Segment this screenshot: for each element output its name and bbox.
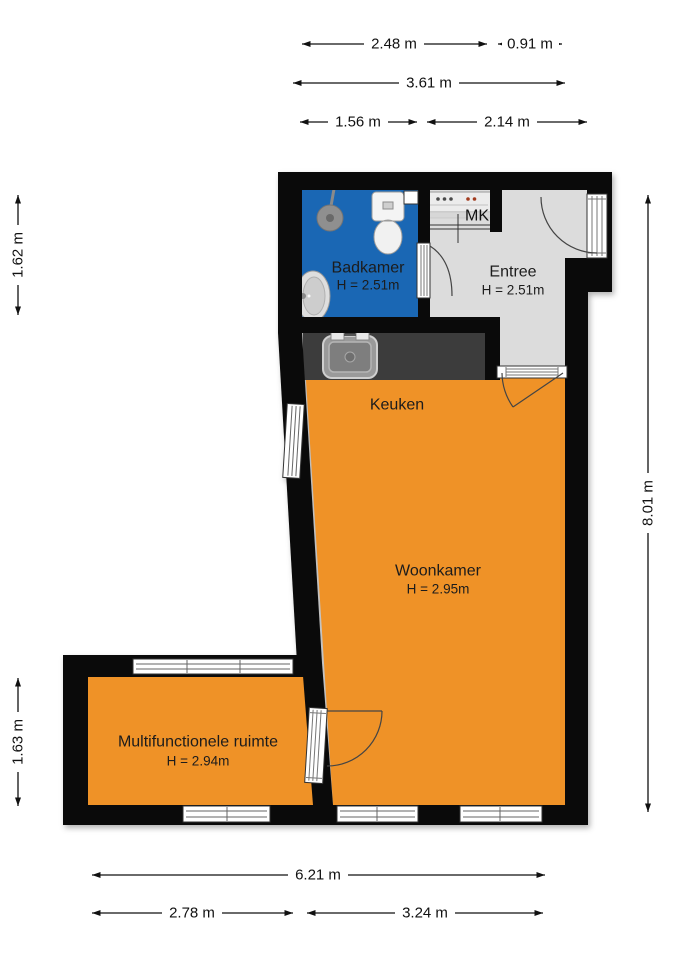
mf-height-label: H = 2.94m — [167, 754, 230, 769]
entree-label: Entree — [489, 264, 536, 281]
door-mf-woonkamer — [305, 708, 328, 784]
dim-bottom-6-21: 6.21 m — [295, 867, 341, 884]
vent-box — [404, 191, 418, 204]
dim-top-2-14: 2.14 m — [484, 114, 530, 131]
wall-right-lower — [565, 292, 588, 825]
woonkamer-height-label: H = 2.95m — [407, 582, 470, 597]
dim-left-1-63: 1.63 m — [10, 719, 27, 765]
window-mf-top — [133, 659, 293, 674]
floor-plan-page: Badkamer H = 2.51m Entree H = 2.51m MK K… — [0, 0, 679, 960]
window-woonkamer-bottom-left — [337, 806, 418, 822]
wall-mf-left — [63, 655, 88, 825]
window-woonkamer-bottom-right — [460, 806, 542, 822]
badkamer-label: Badkamer — [332, 260, 406, 277]
wall-below-badkamer — [278, 317, 500, 333]
mk-label: MK — [465, 208, 489, 225]
dim-right-8-01: 8.01 m — [640, 480, 657, 526]
building: Badkamer H = 2.51m Entree H = 2.51m MK K… — [63, 172, 612, 825]
dim-top-0-91: 0.91 m — [507, 36, 553, 53]
kitchen-sink-icon — [323, 331, 377, 378]
window-mf-bottom — [183, 806, 270, 822]
keuken-label: Keuken — [370, 397, 424, 414]
dim-top-2-48: 2.48 m — [371, 36, 417, 53]
dim-bottom-3-24: 3.24 m — [402, 905, 448, 922]
mf-label: Multifunctionele ruimte — [118, 734, 278, 751]
woonkamer-label: Woonkamer — [395, 563, 482, 580]
dim-bottom-2-78: 2.78 m — [169, 905, 215, 922]
wall-top — [278, 172, 612, 190]
floor-plan-drawing: Badkamer H = 2.51m Entree H = 2.51m MK K… — [0, 0, 679, 960]
entree-height-label: H = 2.51m — [482, 283, 545, 298]
wall-right-jog — [565, 258, 612, 292]
dim-top-3-61: 3.61 m — [406, 75, 452, 92]
dim-top-1-56: 1.56 m — [335, 114, 381, 131]
badkamer-height-label: H = 2.51m — [337, 278, 400, 293]
wall-left-upper — [278, 172, 302, 333]
wall-mk-stub — [490, 190, 502, 232]
dim-left-1-62: 1.62 m — [10, 232, 27, 278]
wall-badkamer-entree-upper — [418, 190, 430, 245]
